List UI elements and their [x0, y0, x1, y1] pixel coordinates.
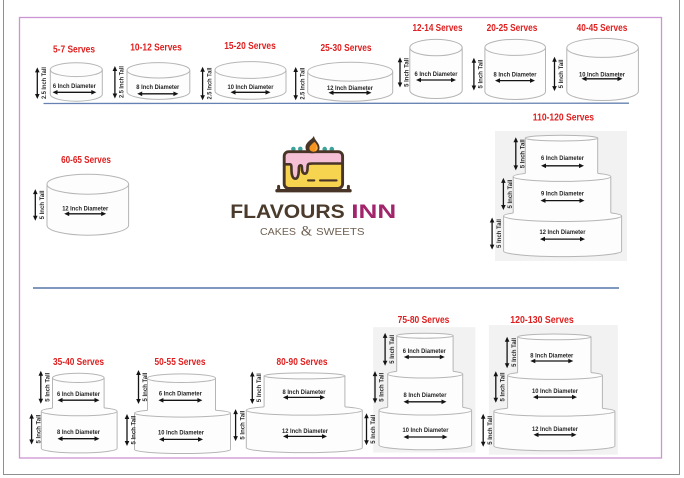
svg-text:35-40 Serves: 35-40 Serves — [53, 357, 104, 368]
svg-text:2.5 Inch Tall: 2.5 Inch Tall — [41, 67, 48, 99]
svg-text:10 Inch Diameter: 10 Inch Diameter — [158, 430, 204, 437]
svg-text:6 Inch Diameter: 6 Inch Diameter — [53, 83, 96, 90]
svg-text:120-130 Serves: 120-130 Serves — [510, 315, 574, 326]
svg-text:80-90 Serves: 80-90 Serves — [277, 357, 328, 368]
svg-text:9 Inch Diameter: 9 Inch Diameter — [541, 190, 584, 197]
svg-text:12-14 Serves: 12-14 Serves — [412, 23, 462, 34]
svg-text:60-65 Serves: 60-65 Serves — [61, 155, 111, 166]
svg-text:2.5 Inch Tall: 2.5 Inch Tall — [206, 67, 213, 99]
svg-text:5 Inch Tall: 5 Inch Tall — [131, 415, 138, 444]
svg-text:SWEETS: SWEETS — [316, 227, 365, 238]
svg-text:6 Inch Diameter: 6 Inch Diameter — [57, 391, 100, 398]
svg-text:5 Inch Tall: 5 Inch Tall — [45, 372, 52, 401]
svg-text:5 Inch Tall: 5 Inch Tall — [142, 372, 149, 401]
svg-text:5 Inch Tall: 5 Inch Tall — [39, 190, 46, 219]
svg-text:8 Inch Diameter: 8 Inch Diameter — [404, 392, 447, 399]
svg-text:CAKES: CAKES — [260, 227, 296, 238]
svg-text:8 Inch Diameter: 8 Inch Diameter — [283, 389, 326, 396]
svg-text:8 Inch Diameter: 8 Inch Diameter — [530, 353, 573, 360]
svg-text:10 Inch Diameter: 10 Inch Diameter — [532, 388, 578, 395]
svg-text:8 Inch Diameter: 8 Inch Diameter — [57, 429, 100, 436]
svg-text:20-25 Serves: 20-25 Serves — [487, 23, 538, 34]
svg-text:10-12 Serves: 10-12 Serves — [130, 42, 182, 53]
svg-text:5 Inch Tall: 5 Inch Tall — [558, 59, 565, 88]
svg-text:25-30 Serves: 25-30 Serves — [320, 43, 371, 54]
svg-text:2.5 Inch Tall: 2.5 Inch Tall — [119, 66, 126, 98]
svg-text:6 Inch Diameter: 6 Inch Diameter — [541, 155, 584, 162]
svg-text:5 Inch Tall: 5 Inch Tall — [500, 372, 507, 401]
svg-text:6 Inch Diameter: 6 Inch Diameter — [415, 71, 458, 78]
svg-text:75-80 Serves: 75-80 Serves — [398, 315, 450, 326]
svg-text:5 Inch Tall: 5 Inch Tall — [389, 335, 396, 364]
svg-text:12 Inch Diameter: 12 Inch Diameter — [540, 229, 586, 236]
svg-text:5-7 Serves: 5-7 Serves — [53, 45, 95, 56]
svg-text:5 Inch Tall: 5 Inch Tall — [487, 416, 494, 445]
svg-text:50-55 Serves: 50-55 Serves — [155, 357, 206, 368]
svg-text:5 Inch Tall: 5 Inch Tall — [379, 372, 386, 401]
svg-text:5 Inch Tall: 5 Inch Tall — [239, 410, 246, 439]
svg-text:2.5 Inch Tall: 2.5 Inch Tall — [299, 67, 306, 99]
svg-text:6 Inch Diameter: 6 Inch Diameter — [403, 348, 446, 355]
svg-text:6 Inch Diameter: 6 Inch Diameter — [159, 391, 202, 398]
svg-text:12 Inch Diameter: 12 Inch Diameter — [327, 85, 373, 92]
svg-text:FLAVOURS: FLAVOURS — [230, 201, 344, 223]
svg-text:INN: INN — [351, 201, 396, 223]
svg-text:5 Inch Tall: 5 Inch Tall — [520, 139, 527, 168]
svg-text:5 Inch Tall: 5 Inch Tall — [256, 373, 263, 402]
svg-text:5 Inch Tall: 5 Inch Tall — [404, 58, 411, 87]
svg-text:12 Inch Diameter: 12 Inch Diameter — [532, 426, 578, 433]
svg-text:12 Inch Diameter: 12 Inch Diameter — [282, 428, 328, 435]
svg-text:&: & — [301, 224, 313, 240]
svg-text:5 Inch Tall: 5 Inch Tall — [496, 219, 503, 248]
svg-text:5 Inch Tall: 5 Inch Tall — [478, 59, 485, 88]
svg-text:10 Inch Diameter: 10 Inch Diameter — [228, 84, 274, 91]
svg-text:5 Inch Tall: 5 Inch Tall — [511, 338, 518, 367]
svg-text:8 Inch Diameter: 8 Inch Diameter — [494, 72, 537, 79]
svg-text:5 Inch Tall: 5 Inch Tall — [35, 414, 42, 443]
svg-text:5 Inch Tall: 5 Inch Tall — [370, 414, 377, 443]
svg-text:40-45 Serves: 40-45 Serves — [577, 23, 628, 34]
svg-text:15-20 Serves: 15-20 Serves — [224, 41, 276, 52]
svg-text:110-120 Serves: 110-120 Serves — [533, 113, 594, 124]
svg-text:5 Inch Tall: 5 Inch Tall — [507, 179, 514, 208]
svg-text:10 Inch Diameter: 10 Inch Diameter — [403, 427, 449, 434]
svg-text:8 Inch Diameter: 8 Inch Diameter — [136, 84, 179, 91]
